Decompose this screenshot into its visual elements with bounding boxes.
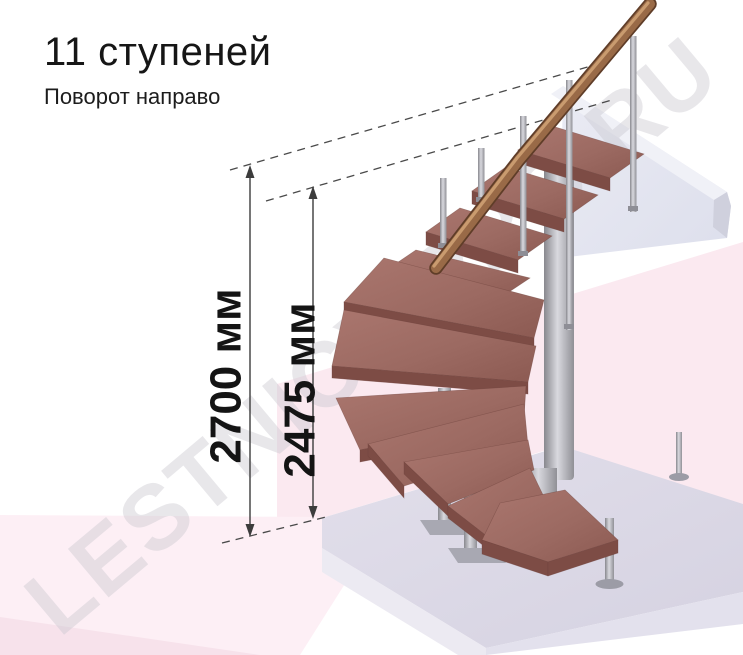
support-rod [676, 432, 682, 476]
page-subtitle: Поворот направо [44, 84, 272, 110]
total-rise-label: 2700 мм [202, 288, 251, 463]
baluster-base [628, 206, 638, 211]
baluster [566, 80, 573, 330]
rise-to-top-step-label: 2475 мм [276, 302, 325, 477]
base-plate [596, 579, 624, 589]
heading-block: 11 ступеней Поворот направо [44, 30, 272, 110]
baluster [440, 178, 447, 248]
baluster [630, 36, 637, 212]
page-title: 11 ступеней [44, 30, 272, 74]
baluster-base [518, 251, 528, 256]
baluster [520, 116, 527, 256]
staircase-diagram-page: LESTNICY-PRO.RU 2700 мм 2475 мм [0, 0, 743, 655]
baluster-base [564, 324, 574, 329]
base-plate [669, 473, 689, 481]
baluster [478, 148, 485, 202]
